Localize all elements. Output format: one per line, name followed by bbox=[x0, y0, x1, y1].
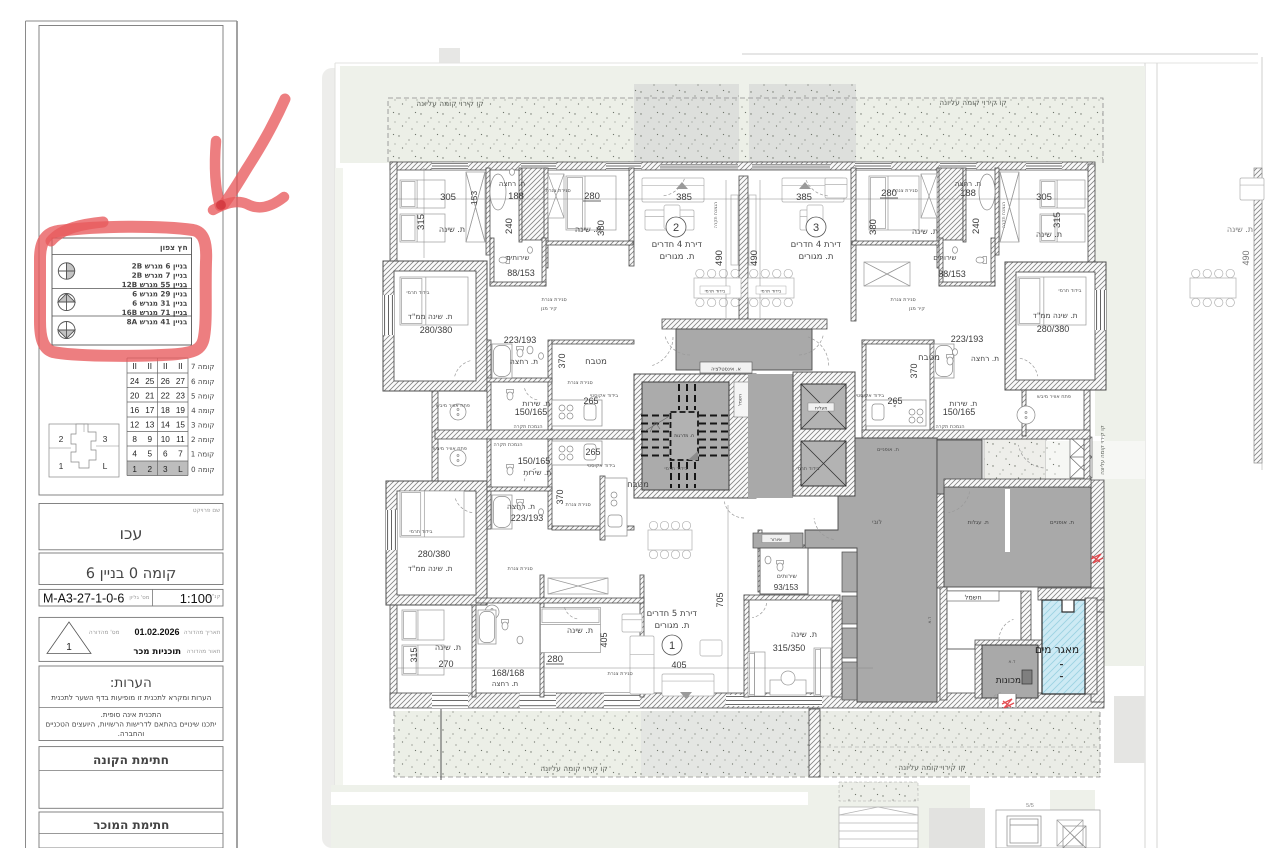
svg-text:705: 705 bbox=[715, 592, 725, 607]
svg-text:280: 280 bbox=[584, 191, 600, 202]
svg-text:305: 305 bbox=[440, 192, 456, 203]
svg-text:01.02.2026: 01.02.2026 bbox=[134, 627, 179, 637]
svg-text:8: 8 bbox=[132, 435, 137, 444]
svg-text:265: 265 bbox=[585, 447, 600, 457]
svg-text:10: 10 bbox=[161, 435, 171, 444]
svg-text:22: 22 bbox=[161, 392, 171, 401]
svg-text:6: 6 bbox=[163, 450, 168, 459]
svg-text:405: 405 bbox=[671, 660, 686, 670]
svg-text:2: 2 bbox=[59, 434, 64, 444]
svg-text:150/165: 150/165 bbox=[518, 456, 551, 466]
svg-text:14: 14 bbox=[161, 421, 171, 430]
svg-text:3: 3 bbox=[103, 434, 108, 444]
svg-text:93/153: 93/153 bbox=[774, 583, 799, 592]
svg-text:4: 4 bbox=[132, 450, 137, 459]
svg-text:280/380: 280/380 bbox=[1037, 324, 1070, 334]
svg-text:223/193: 223/193 bbox=[951, 334, 984, 344]
svg-text:223/193: 223/193 bbox=[504, 335, 537, 345]
svg-text:188: 188 bbox=[508, 191, 524, 202]
svg-text:II: II bbox=[148, 362, 153, 371]
svg-text:5/5: 5/5 bbox=[1026, 803, 1034, 809]
svg-text:1: 1 bbox=[669, 640, 675, 652]
svg-text:3: 3 bbox=[163, 465, 168, 474]
svg-text:23: 23 bbox=[176, 392, 186, 401]
svg-text:25: 25 bbox=[145, 377, 155, 386]
svg-text:11: 11 bbox=[176, 435, 185, 444]
svg-text:16: 16 bbox=[130, 406, 140, 415]
svg-text:188: 188 bbox=[960, 188, 976, 199]
svg-text:280: 280 bbox=[547, 654, 563, 665]
svg-text:315/350: 315/350 bbox=[773, 643, 806, 653]
svg-text:17: 17 bbox=[145, 406, 155, 415]
svg-text:27: 27 bbox=[176, 377, 186, 386]
svg-text:240: 240 bbox=[971, 218, 982, 234]
svg-text:88/153: 88/153 bbox=[507, 268, 535, 278]
svg-text:26: 26 bbox=[161, 377, 171, 386]
svg-text:15: 15 bbox=[176, 421, 186, 430]
svg-text:385: 385 bbox=[676, 192, 692, 203]
svg-text:405: 405 bbox=[599, 632, 609, 647]
svg-text:19: 19 bbox=[176, 406, 186, 415]
svg-text:280/380: 280/380 bbox=[418, 549, 451, 559]
svg-text:315: 315 bbox=[1052, 212, 1063, 228]
svg-text:13: 13 bbox=[145, 421, 155, 430]
svg-text:150/165: 150/165 bbox=[943, 407, 976, 417]
svg-text:1:100: 1:100 bbox=[180, 591, 213, 606]
svg-text:12: 12 bbox=[130, 421, 140, 430]
svg-text:315: 315 bbox=[409, 647, 419, 662]
svg-text:88/153: 88/153 bbox=[938, 269, 966, 279]
svg-text:3: 3 bbox=[813, 222, 819, 234]
svg-text:L: L bbox=[178, 465, 183, 474]
svg-text:7: 7 bbox=[178, 450, 183, 459]
svg-text:265: 265 bbox=[583, 396, 598, 406]
svg-text:223/193: 223/193 bbox=[511, 513, 544, 523]
svg-text:21: 21 bbox=[145, 392, 155, 401]
svg-text:168/168: 168/168 bbox=[492, 668, 525, 678]
svg-text:280/380: 280/380 bbox=[420, 325, 453, 335]
svg-text:2: 2 bbox=[148, 465, 153, 474]
svg-text:M-A3-27-1-0-6: M-A3-27-1-0-6 bbox=[43, 592, 124, 606]
svg-text:385: 385 bbox=[796, 192, 812, 203]
svg-text:1: 1 bbox=[132, 465, 137, 474]
svg-text:265: 265 bbox=[887, 396, 902, 406]
svg-text:II: II bbox=[132, 362, 137, 371]
svg-text:18: 18 bbox=[161, 406, 171, 415]
svg-text:24: 24 bbox=[130, 377, 140, 386]
svg-text:270: 270 bbox=[438, 659, 453, 669]
svg-text:305: 305 bbox=[1036, 192, 1052, 203]
svg-text:5: 5 bbox=[148, 450, 153, 459]
svg-text:150/165: 150/165 bbox=[515, 407, 548, 417]
svg-text:370: 370 bbox=[557, 353, 567, 368]
svg-text:240: 240 bbox=[504, 218, 515, 234]
svg-text:L: L bbox=[103, 461, 108, 471]
svg-text:315: 315 bbox=[416, 214, 427, 230]
svg-text:20: 20 bbox=[130, 392, 140, 401]
svg-text:153: 153 bbox=[469, 191, 479, 205]
svg-text:II: II bbox=[178, 362, 183, 371]
svg-text:1: 1 bbox=[59, 461, 64, 471]
svg-text:2: 2 bbox=[673, 222, 679, 234]
svg-text:II: II bbox=[163, 362, 168, 371]
svg-text:490: 490 bbox=[714, 250, 725, 266]
svg-text:490: 490 bbox=[1241, 250, 1251, 265]
svg-text:9: 9 bbox=[148, 435, 153, 444]
svg-text:1: 1 bbox=[66, 642, 72, 653]
svg-text:370: 370 bbox=[909, 363, 919, 378]
svg-text:490: 490 bbox=[749, 250, 760, 266]
svg-text:380: 380 bbox=[868, 219, 879, 235]
svg-text:370: 370 bbox=[555, 489, 565, 504]
